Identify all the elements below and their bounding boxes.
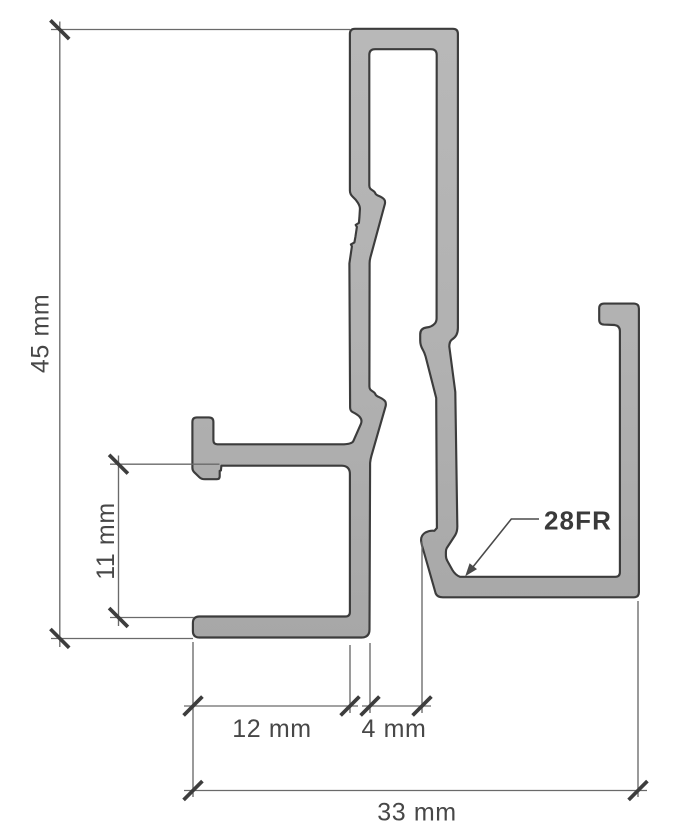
svg-text:45 mm: 45 mm — [27, 294, 55, 373]
svg-text:28FR: 28FR — [544, 506, 612, 536]
svg-text:33 mm: 33 mm — [377, 799, 456, 827]
svg-text:12 mm: 12 mm — [232, 715, 311, 743]
svg-text:4 mm: 4 mm — [362, 715, 427, 743]
svg-text:11 mm: 11 mm — [92, 502, 120, 580]
